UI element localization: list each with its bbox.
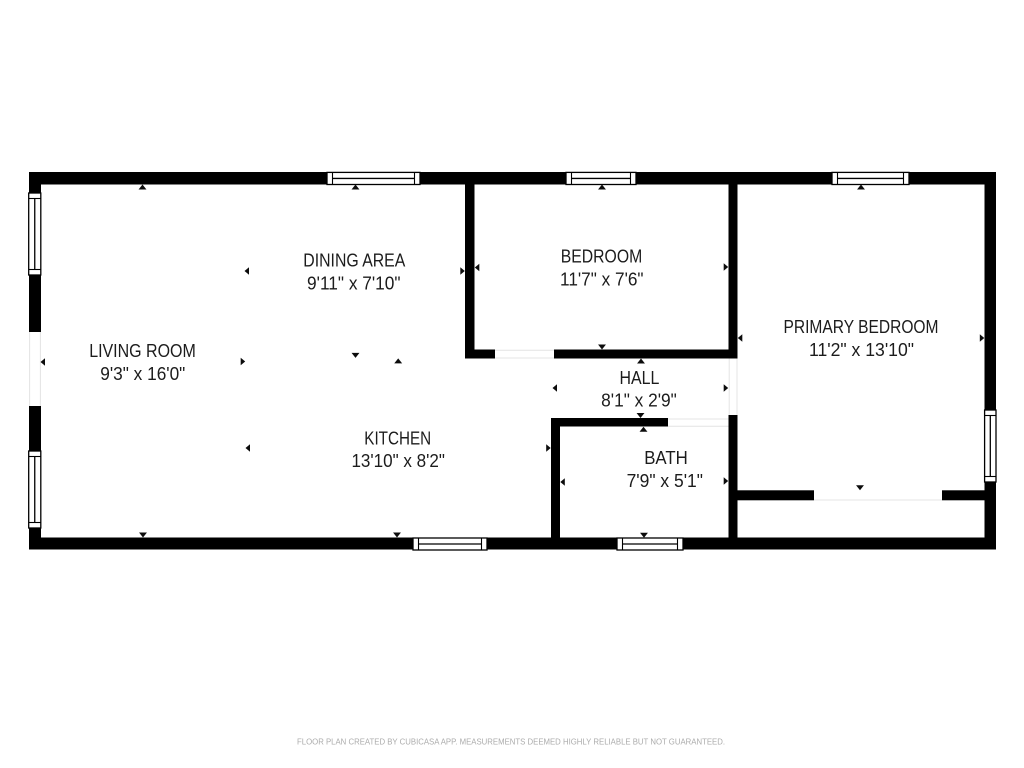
svg-text:9'11" x 7'10": 9'11" x 7'10" xyxy=(307,273,401,293)
svg-text:PRIMARY BEDROOM: PRIMARY BEDROOM xyxy=(784,317,939,337)
svg-text:13'10" x 8'2": 13'10" x 8'2" xyxy=(351,451,445,471)
svg-text:HALL: HALL xyxy=(620,368,660,388)
svg-text:11'2" x 13'10": 11'2" x 13'10" xyxy=(809,340,914,360)
svg-text:9'3" x 16'0": 9'3" x 16'0" xyxy=(100,364,185,384)
svg-text:KITCHEN: KITCHEN xyxy=(364,428,431,448)
svg-text:7'9" x 5'1": 7'9" x 5'1" xyxy=(627,471,703,491)
svg-text:11'7" x 7'6": 11'7" x 7'6" xyxy=(560,270,644,290)
svg-text:FLOOR PLAN CREATED BY CUBICASA: FLOOR PLAN CREATED BY CUBICASA APP. MEAS… xyxy=(297,736,725,746)
svg-text:8'1" x 2'9": 8'1" x 2'9" xyxy=(601,390,677,410)
svg-text:BEDROOM: BEDROOM xyxy=(561,247,642,267)
svg-text:BATH: BATH xyxy=(644,448,688,468)
svg-text:LIVING ROOM: LIVING ROOM xyxy=(89,341,196,361)
svg-text:DINING AREA: DINING AREA xyxy=(303,251,406,271)
